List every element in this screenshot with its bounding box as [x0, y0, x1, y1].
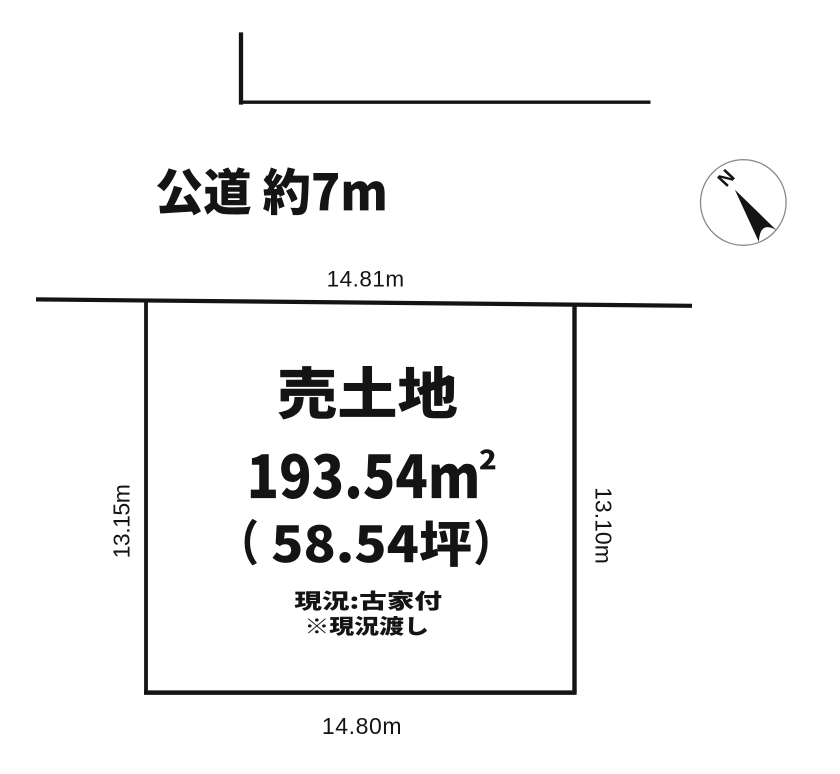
svg-text:14.81m: 14.81m: [327, 266, 405, 291]
svg-text:13.10m: 13.10m: [591, 487, 617, 564]
svg-text:13.15m: 13.15m: [109, 485, 135, 559]
svg-text:14.80m: 14.80m: [322, 713, 402, 739]
